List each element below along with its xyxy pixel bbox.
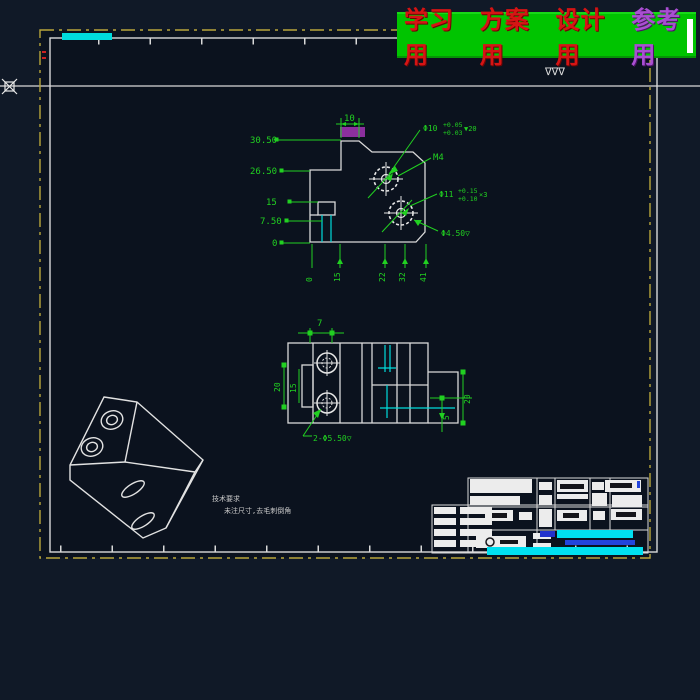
callout-hole-mid-tol-up: +0.15 <box>458 187 478 195</box>
dim-left-4: 0 <box>272 239 277 249</box>
dim-left-0: 30.50 <box>250 136 277 146</box>
plan-dim-5: 5 <box>442 415 451 420</box>
dim-left-1: 26.50 <box>250 167 277 177</box>
watermark-banner: 学习用 方案用 设计用 参考用 <box>397 12 696 58</box>
tech-note-line2: 未注尺寸,去毛刺倒角 <box>224 506 291 515</box>
dim-bottom-2: 22 <box>378 272 387 282</box>
title-block-blue-tick <box>637 481 640 488</box>
dim-top-10: 10 <box>344 114 355 124</box>
border-cyan-mark <box>62 33 112 40</box>
plan-dim-20-left: 20 <box>273 382 282 392</box>
dim-left-2: 15 <box>266 198 277 208</box>
cad-canvas: ∇∇∇ <box>0 0 700 700</box>
callout-hole-mid-qty: ×3 <box>479 191 487 199</box>
dim-bottom-3: 32 <box>398 272 407 282</box>
plan-note-2xd550: 2-Φ5.50▽ <box>313 434 352 443</box>
callout-hole-mid-tol-dn: +0.10 <box>458 195 478 203</box>
watermark-scheme: 方案用 <box>480 0 545 70</box>
callout-hole-mid-dia: Φ11 <box>439 190 454 199</box>
callout-hole-top-tol-dn: +0.03 <box>443 129 463 137</box>
callout-thread: M4 <box>433 153 444 163</box>
plan-dim-7: 7 <box>317 319 322 329</box>
watermark-study: 学习用 <box>404 0 469 70</box>
plan-dim-15-left: 15 <box>289 383 298 393</box>
highlight-magenta <box>340 127 365 137</box>
banner-end-strip <box>687 19 693 53</box>
callout-hole-top-tol-up: +0.05 <box>443 121 463 129</box>
watermark-design: 设计用 <box>556 0 621 70</box>
callout-hole-small: Φ4.50▽ <box>441 229 470 238</box>
tech-note-line1: 技术要求 <box>212 494 240 503</box>
dim-left-3: 7.50 <box>260 217 282 227</box>
callout-hole-top-depth: ▼20 <box>464 125 477 133</box>
dim-bottom-0: 0 <box>305 277 314 282</box>
callout-hole-top-dia: Φ10 <box>423 124 438 133</box>
plan-dim-20-right: 20 <box>463 394 472 404</box>
dim-bottom-4: 41 <box>419 272 428 282</box>
drawing-sheet <box>40 30 650 558</box>
dim-bottom-1: 15 <box>333 272 342 282</box>
